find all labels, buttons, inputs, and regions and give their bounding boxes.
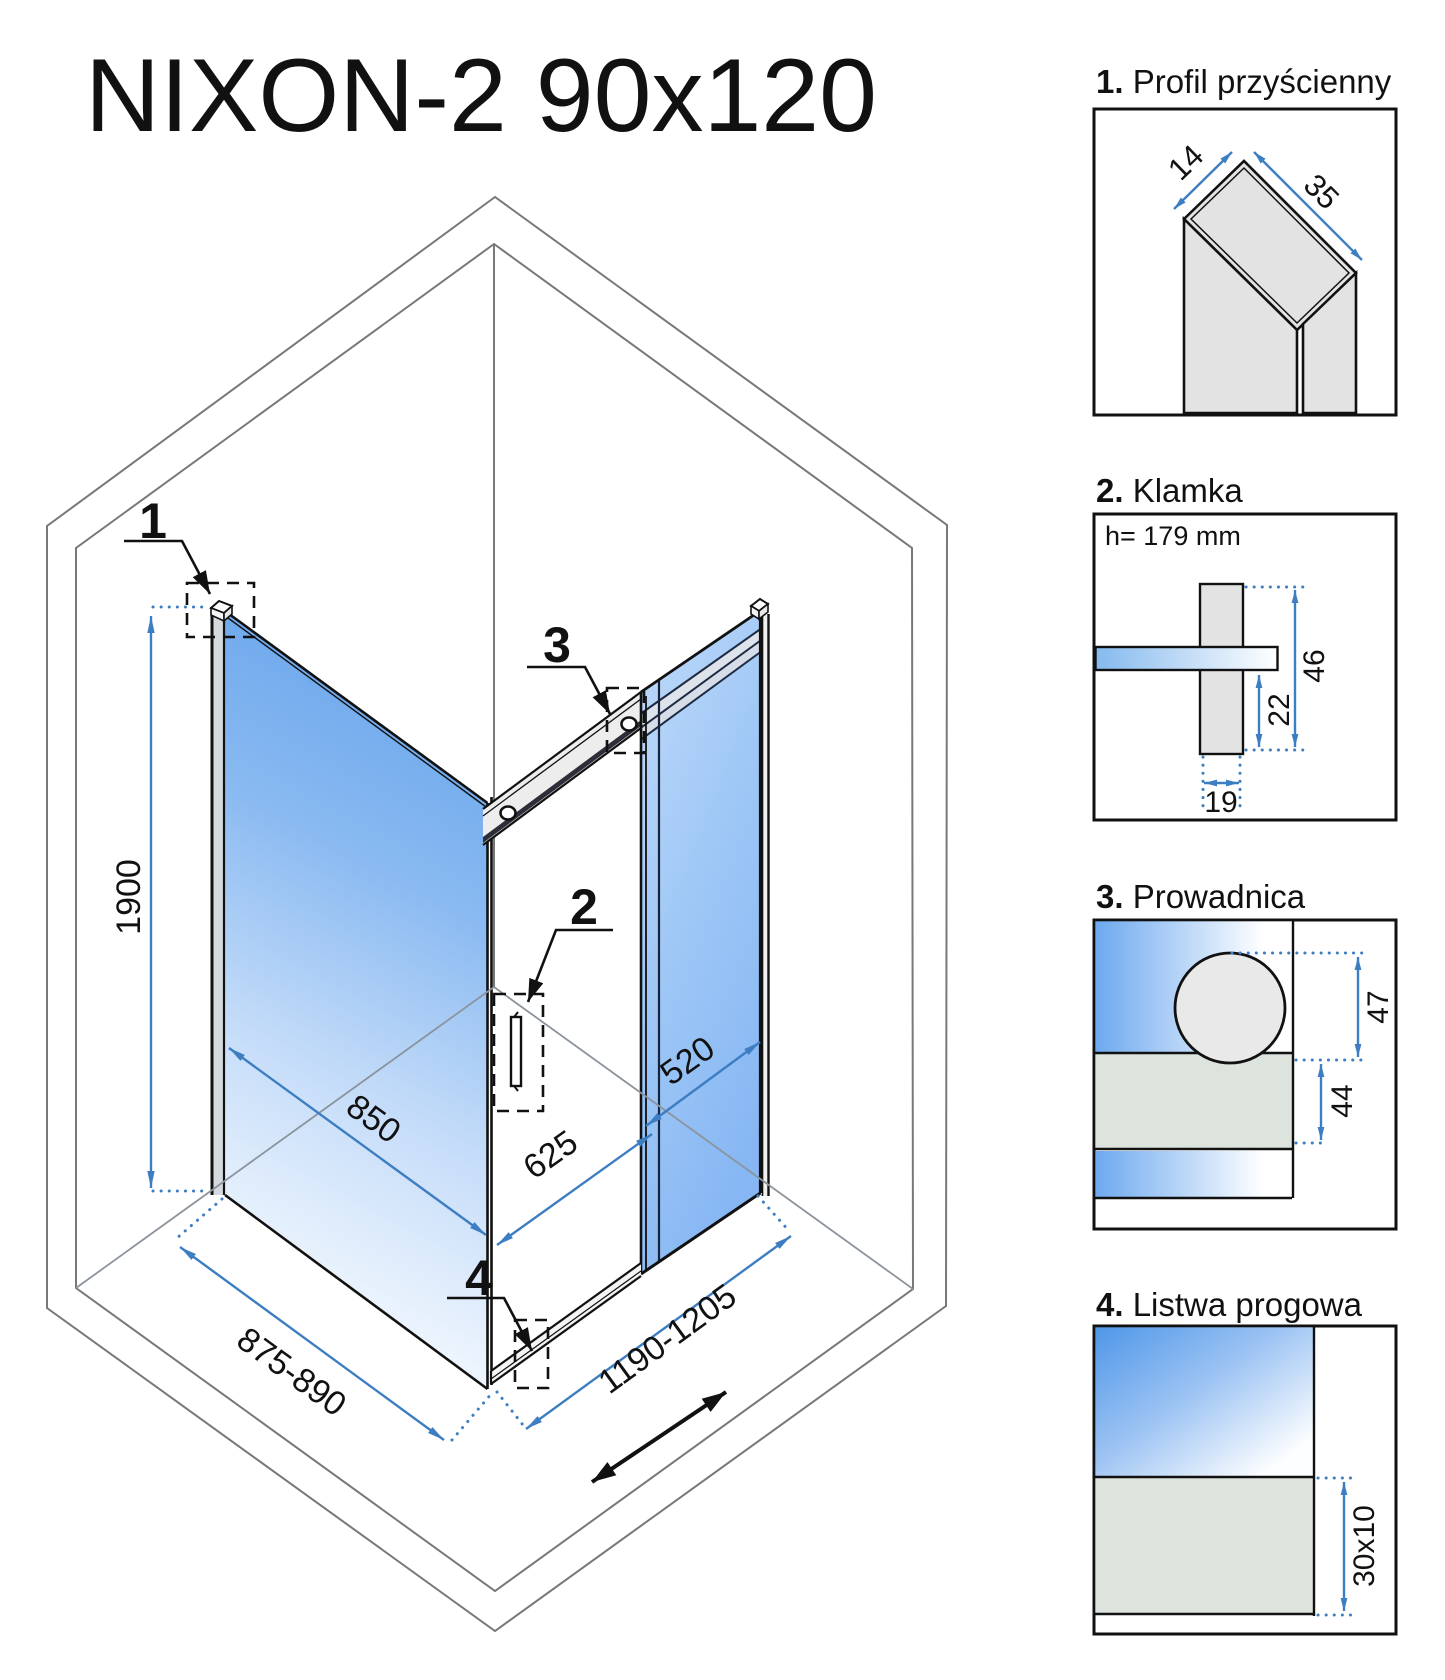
svg-text:h= 179 mm: h= 179 mm [1105, 521, 1241, 551]
svg-text:22: 22 [1263, 693, 1296, 726]
svg-text:2: 2 [570, 879, 598, 935]
svg-text:1900: 1900 [110, 859, 148, 935]
svg-text:47: 47 [1362, 990, 1395, 1023]
svg-text:2. Klamka: 2. Klamka [1096, 472, 1243, 509]
svg-text:19: 19 [1204, 786, 1237, 819]
svg-text:3: 3 [543, 617, 571, 673]
svg-text:4. Listwa progowa: 4. Listwa progowa [1096, 1286, 1363, 1323]
svg-text:44: 44 [1326, 1084, 1359, 1117]
svg-text:30x10: 30x10 [1348, 1505, 1381, 1587]
svg-text:NIXON-2 90x120: NIXON-2 90x120 [85, 38, 877, 154]
svg-text:46: 46 [1298, 649, 1331, 682]
svg-text:3. Prowadnica: 3. Prowadnica [1096, 878, 1306, 915]
svg-text:1. Profil przyścienny: 1. Profil przyścienny [1096, 63, 1392, 100]
